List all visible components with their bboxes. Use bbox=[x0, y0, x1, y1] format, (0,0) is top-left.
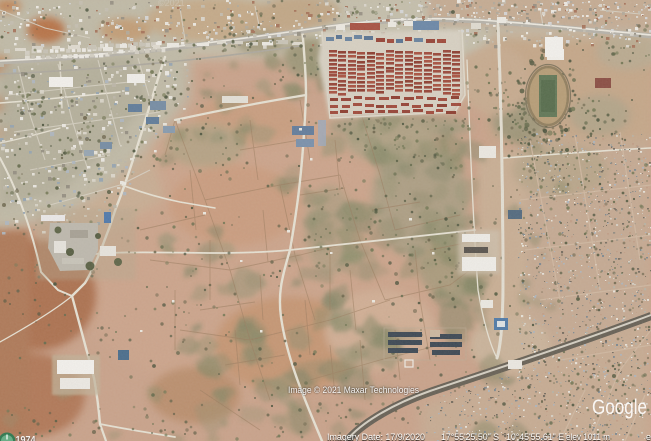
svg-text:Image © 2021 Maxar Technologie: Image © 2021 Maxar Technologies bbox=[288, 385, 419, 396]
svg-text:eye alt 3.44 km: eye alt 3.44 km bbox=[646, 432, 651, 441]
svg-text:©2021: ©2021 bbox=[158, 0, 185, 8]
svg-text:elev 1011 m: elev 1011 m bbox=[566, 432, 610, 441]
svg-text:1974: 1974 bbox=[16, 435, 37, 441]
svg-text:17°55'25.50" S: 17°55'25.50" S bbox=[441, 432, 499, 441]
svg-text:Imagery Date: 17/9/2020: Imagery Date: 17/9/2020 bbox=[327, 432, 425, 441]
svg-text:10°45'55.61" E: 10°45'55.61" E bbox=[506, 432, 564, 441]
svg-text:Google: Google bbox=[592, 396, 647, 419]
